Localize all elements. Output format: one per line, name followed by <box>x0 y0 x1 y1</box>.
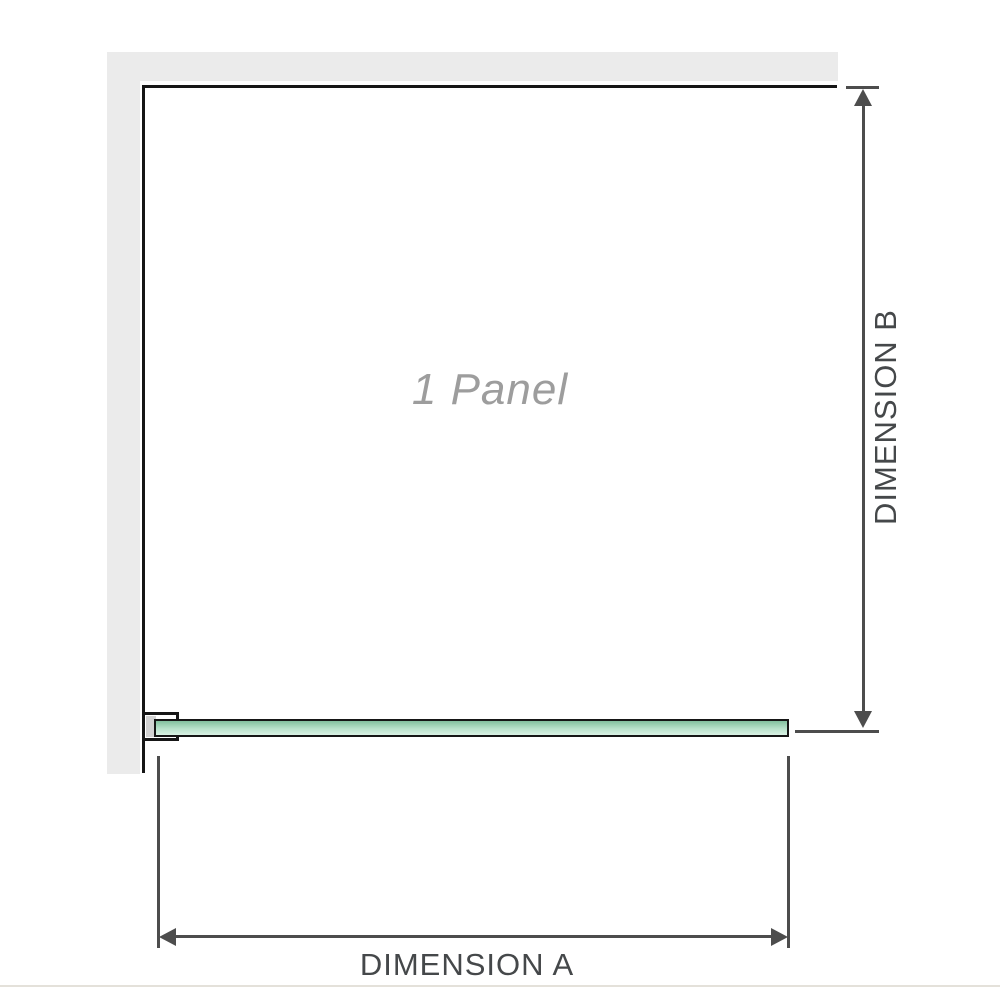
glass-panel <box>154 719 789 737</box>
dimension-b-label: DIMENSION B <box>869 297 903 537</box>
panel-count-label: 1 Panel <box>143 368 837 412</box>
dimension-b-tick-bottom <box>795 730 879 733</box>
dimension-b-line <box>862 100 865 716</box>
arrow-up-icon <box>854 89 872 106</box>
dimension-a-label: DIMENSION A <box>160 948 774 982</box>
image-baseline <box>0 985 1000 987</box>
shower-panel-diagram: 1 Panel DIMENSION B DIMENSION A <box>0 0 1000 1000</box>
arrow-down-icon <box>854 711 872 728</box>
panel-outline-top <box>142 85 837 88</box>
dimension-a-tick-left <box>157 756 160 948</box>
dimension-a-line <box>170 935 777 938</box>
arrow-left-icon <box>159 928 176 946</box>
wall-left <box>107 52 140 774</box>
panel-outline-left <box>142 85 145 773</box>
dimension-a-tick-right <box>787 756 790 948</box>
wall-top <box>107 52 838 81</box>
arrow-right-icon <box>771 928 788 946</box>
